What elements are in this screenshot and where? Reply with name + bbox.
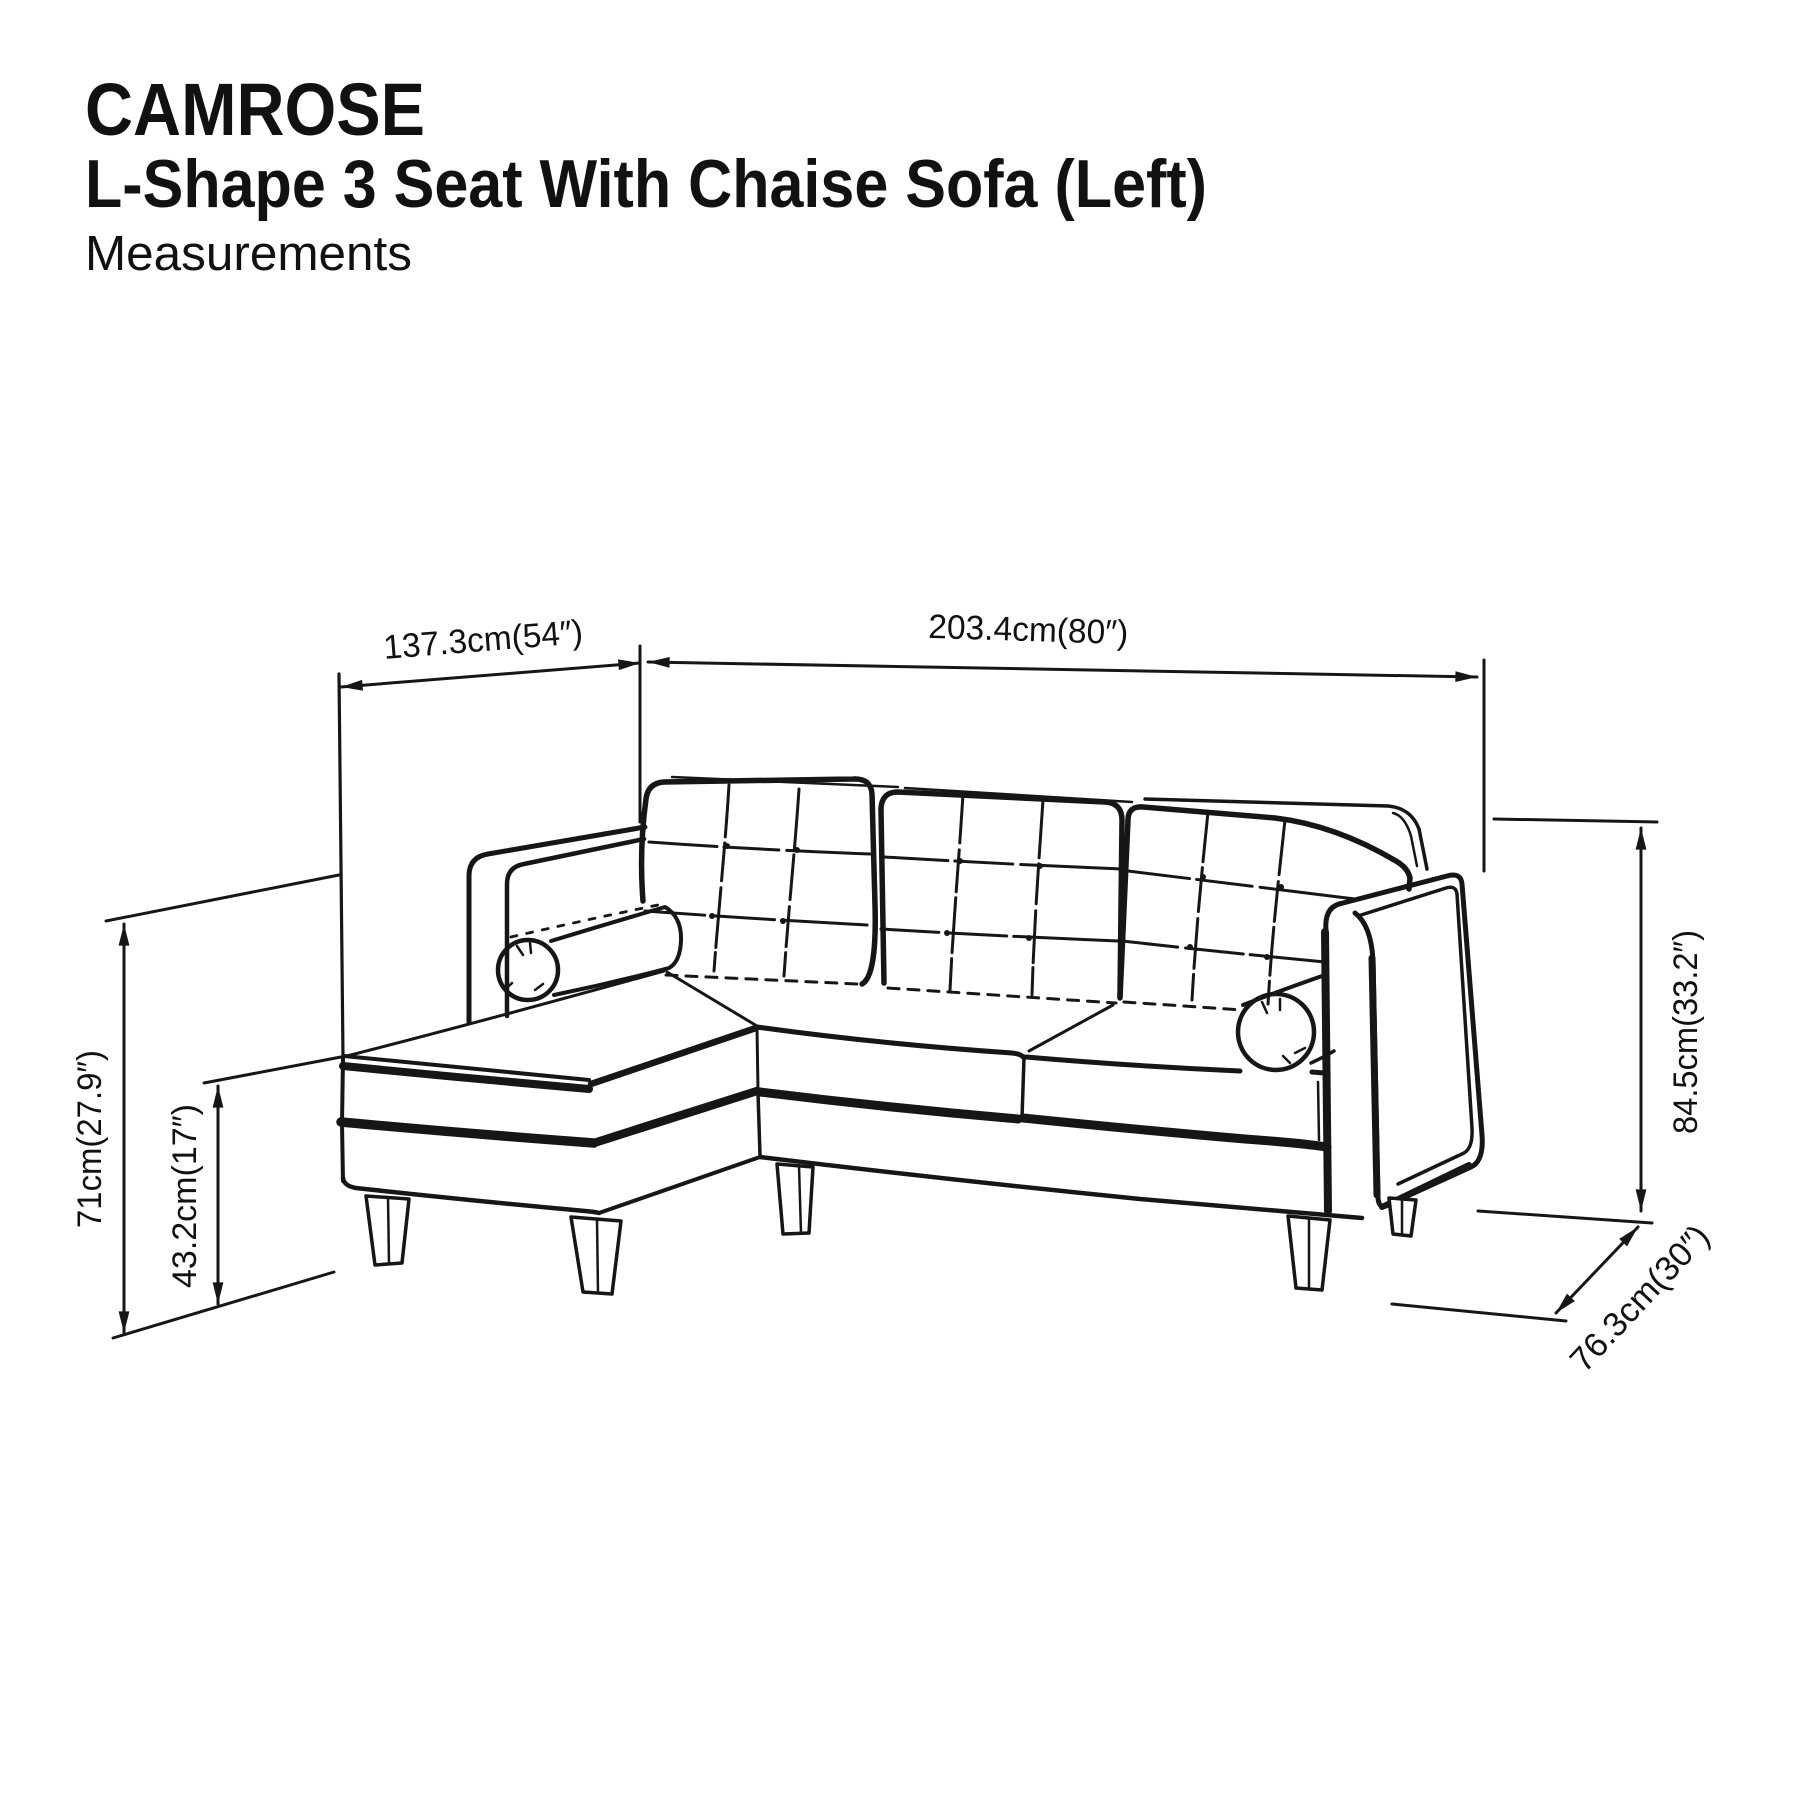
svg-text:71cm(27.9″): 71cm(27.9″) xyxy=(71,1050,109,1228)
svg-text:203.4cm(80″): 203.4cm(80″) xyxy=(928,608,1129,652)
svg-text:76.3cm(30″): 76.3cm(30″) xyxy=(1563,1218,1718,1380)
svg-text:CAMROSE: CAMROSE xyxy=(85,68,425,151)
svg-text:137.3cm(54″): 137.3cm(54″) xyxy=(382,613,584,667)
svg-text:43.2cm(17″): 43.2cm(17″) xyxy=(166,1104,204,1288)
svg-text:84.5cm(33.2″): 84.5cm(33.2″) xyxy=(1667,930,1705,1134)
svg-text:Measurements: Measurements xyxy=(85,227,412,281)
svg-text:L-Shape 3 Seat With Chaise Sof: L-Shape 3 Seat With Chaise Sofa (Left) xyxy=(85,146,1207,222)
